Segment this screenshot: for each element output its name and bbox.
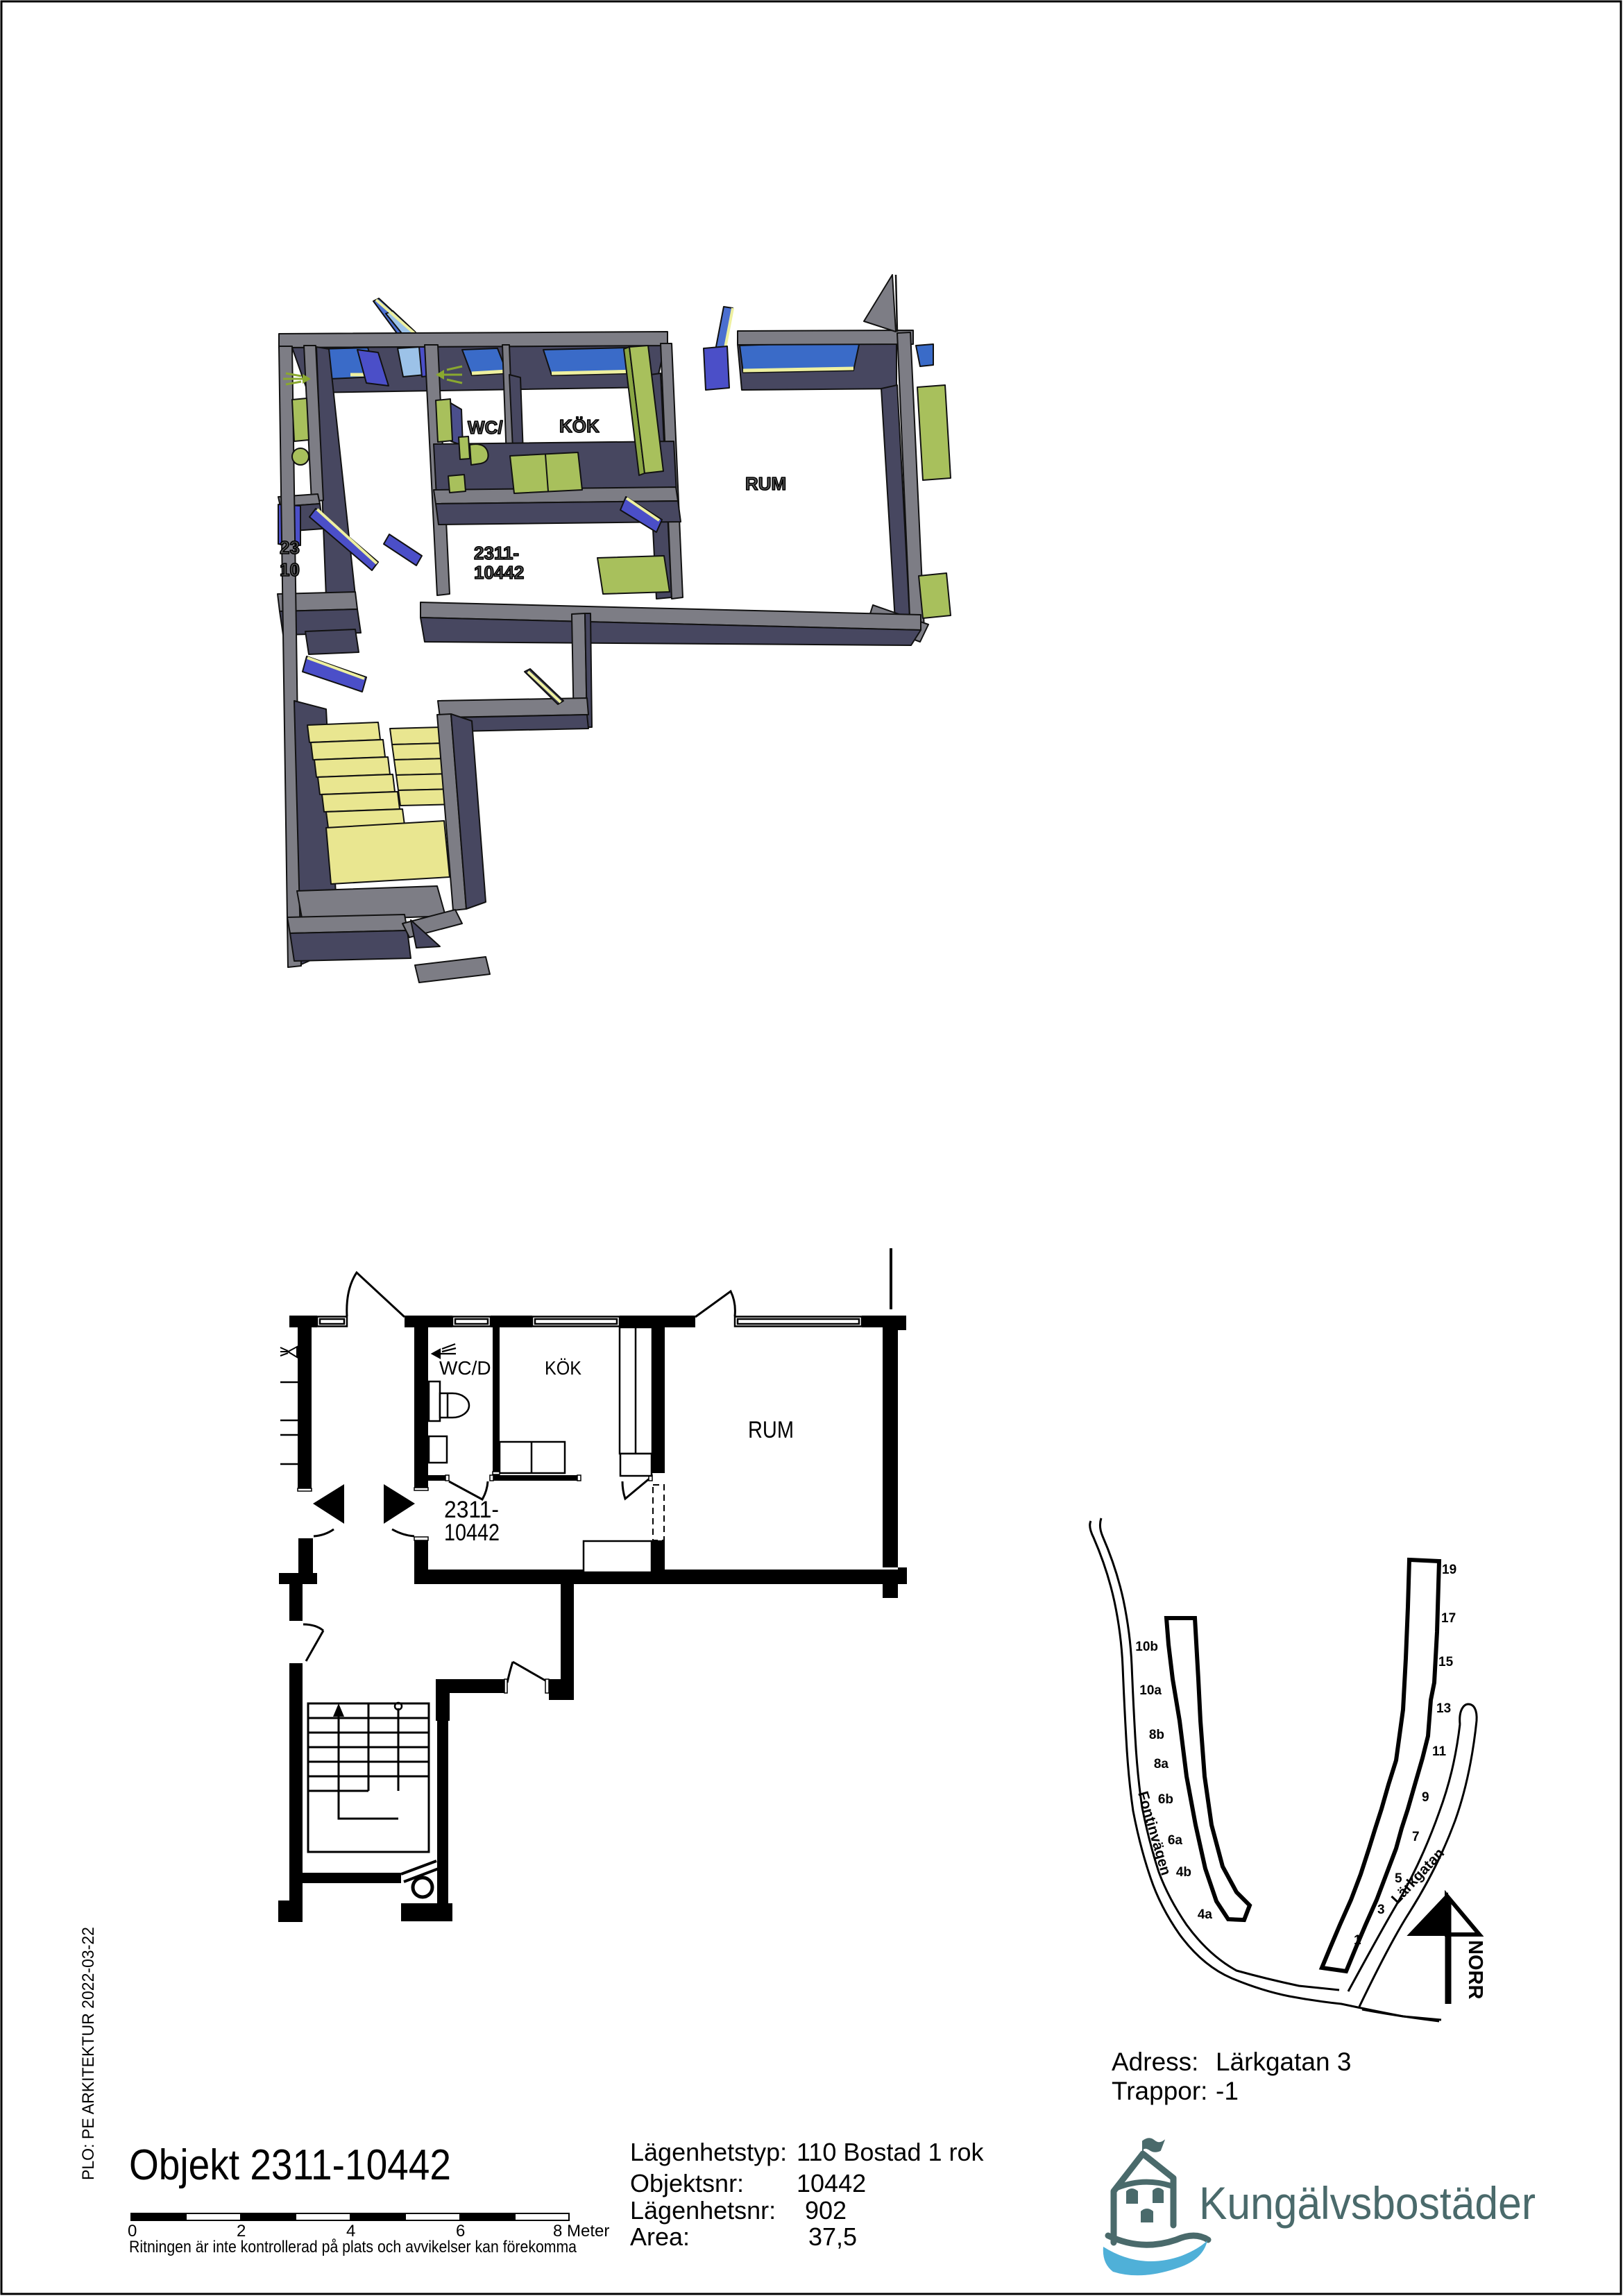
svg-text:WC/D: WC/D (439, 1357, 491, 1379)
svg-text:1: 1 (1354, 1933, 1361, 1948)
svg-text:6b: 6b (1158, 1792, 1173, 1807)
svg-text:110 Bostad 1 rok: 110 Bostad 1 rok (797, 2138, 985, 2166)
svg-text:NORR: NORR (1464, 1940, 1486, 1999)
svg-text:Ritningen är inte kontrollerad: Ritningen är inte kontrollerad på plats … (129, 2238, 577, 2256)
svg-text:Adress:: Adress: (1112, 2048, 1198, 2076)
svg-text:Lägenhetsnr:: Lägenhetsnr: (630, 2196, 776, 2225)
svg-text:15: 15 (1438, 1655, 1454, 1669)
svg-text:8b: 8b (1149, 1728, 1164, 1742)
svg-text:17: 17 (1441, 1611, 1456, 1626)
svg-text:Area:: Area: (630, 2222, 690, 2251)
svg-text:PLO: PE ARKITEKTUR 2022-03-22: PLO: PE ARKITEKTUR 2022-03-22 (79, 1927, 98, 2180)
svg-text:Trappor:: Trappor: (1112, 2077, 1207, 2105)
svg-text:Objekt 2311-10442: Objekt 2311-10442 (129, 2141, 451, 2189)
svg-text:2311-: 2311- (474, 543, 519, 563)
svg-text:10a: 10a (1139, 1683, 1162, 1698)
svg-text:KÖK: KÖK (559, 416, 600, 436)
svg-text:3: 3 (1377, 1903, 1385, 1917)
svg-text:RUM: RUM (748, 1417, 794, 1443)
svg-text:19: 19 (1442, 1563, 1456, 1577)
svg-text:37,5: 37,5 (808, 2222, 857, 2251)
svg-text:10442: 10442 (797, 2169, 866, 2197)
svg-text:7: 7 (1412, 1830, 1420, 1844)
svg-text:11: 11 (1432, 1744, 1447, 1759)
svg-text:23: 23 (280, 537, 300, 558)
svg-text:10b: 10b (1135, 1640, 1158, 1654)
svg-text:KÖK: KÖK (545, 1357, 581, 1379)
svg-text:10: 10 (280, 559, 300, 580)
svg-text:902: 902 (805, 2196, 847, 2225)
svg-text:8a: 8a (1154, 1757, 1169, 1771)
svg-text:13: 13 (1436, 1701, 1451, 1716)
svg-text:9: 9 (1422, 1790, 1429, 1805)
svg-text:10442: 10442 (444, 1520, 500, 1546)
svg-text:Objektsnr:: Objektsnr: (630, 2169, 744, 2197)
svg-text:Lägenhetstyp:: Lägenhetstyp: (630, 2138, 787, 2166)
svg-text:-1: -1 (1216, 2077, 1239, 2105)
svg-text:RUM: RUM (745, 473, 786, 494)
svg-text:WC/: WC/ (468, 417, 503, 438)
svg-text:4a: 4a (1198, 1907, 1213, 1922)
svg-text:10442: 10442 (474, 562, 524, 583)
svg-text:Kungälvsbostäder: Kungälvsbostäder (1199, 2177, 1536, 2229)
svg-text:Lärkgatan 3: Lärkgatan 3 (1216, 2048, 1351, 2076)
svg-text:4b: 4b (1176, 1865, 1191, 1880)
svg-text:6a: 6a (1168, 1833, 1183, 1848)
